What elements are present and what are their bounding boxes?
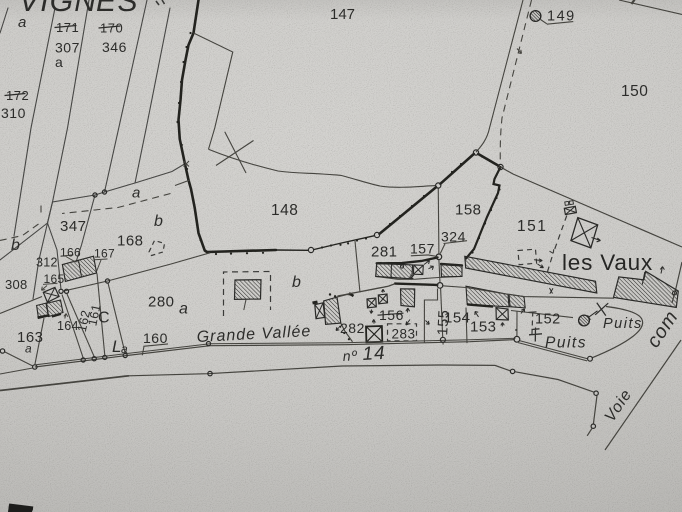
svg-text:312: 312 [36, 256, 58, 270]
svg-text:a: a [132, 185, 140, 202]
svg-text:149: 149 [547, 9, 576, 25]
svg-text:a: a [121, 342, 128, 356]
svg-text:a: a [18, 14, 26, 31]
svg-text:165: 165 [44, 272, 65, 286]
svg-text:156: 156 [379, 307, 404, 323]
svg-text:b: b [11, 237, 20, 254]
svg-text:168: 168 [117, 233, 144, 250]
svg-text:282: 282 [340, 320, 365, 336]
svg-text:C: C [98, 310, 110, 327]
svg-text:151: 151 [517, 218, 547, 235]
svg-text:a: a [25, 342, 32, 356]
svg-text:283: 283 [392, 327, 416, 342]
svg-text:148: 148 [271, 202, 298, 219]
svg-text:324: 324 [441, 229, 466, 245]
svg-text:a: a [179, 301, 188, 318]
svg-text:308: 308 [5, 277, 28, 292]
svg-text:157: 157 [410, 241, 435, 257]
svg-text:147: 147 [330, 6, 355, 23]
svg-text:310: 310 [1, 105, 26, 121]
svg-text:a: a [55, 54, 63, 70]
svg-text:280: 280 [148, 294, 175, 311]
svg-text:152: 152 [535, 312, 561, 328]
svg-text:les Vaux: les Vaux [562, 250, 653, 275]
svg-text:347: 347 [60, 218, 87, 235]
svg-text:155: 155 [435, 309, 452, 336]
svg-text:Puits: Puits [603, 316, 643, 332]
svg-text:VIGN: VIGN [19, 0, 97, 18]
svg-text:160: 160 [143, 330, 168, 346]
svg-text:166: 166 [60, 246, 81, 260]
svg-text:281: 281 [371, 244, 398, 261]
svg-text:b: b [292, 274, 301, 291]
svg-text:150: 150 [621, 83, 648, 100]
svg-text:153: 153 [470, 319, 497, 336]
svg-text:ES: ES [96, 0, 139, 18]
svg-text:164: 164 [57, 319, 79, 333]
svg-text:167: 167 [94, 247, 115, 261]
svg-text:Puits: Puits [545, 335, 587, 352]
svg-text:158: 158 [455, 202, 482, 219]
svg-text:346: 346 [102, 39, 127, 55]
svg-text:b: b [154, 213, 163, 230]
